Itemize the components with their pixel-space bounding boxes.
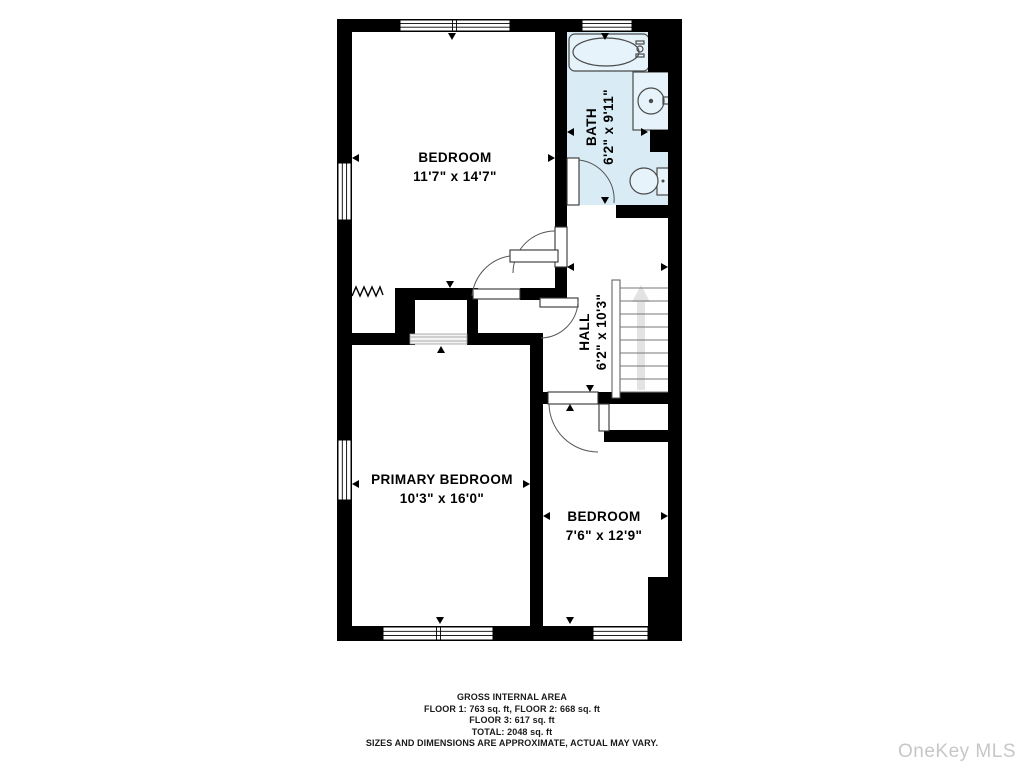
room-dims-primary-bedroom: 10'3" x 16'0" [400,491,484,506]
area-summary-title: GROSS INTERNAL AREA [0,692,1024,704]
window-top-bath [582,20,632,31]
door-hall-bedroom [548,392,598,452]
door-linen-closet [599,404,609,431]
room-label-hall: HALL [577,313,592,351]
door-hall-primary [540,298,578,338]
area-floor-3: FLOOR 3: 617 sq. ft [0,715,1024,727]
staircase [612,280,668,398]
zigzag-symbol [352,287,383,296]
area-floor-1-2: FLOOR 1: 763 sq. ft, FLOOR 2: 668 sq. ft [0,704,1024,716]
area-summary: GROSS INTERNAL AREA FLOOR 1: 763 sq. ft,… [0,692,1024,750]
room-dims-bedroom-bottom: 7'6" x 12'9" [566,528,643,543]
window-left-upper [338,163,351,220]
room-label-bedroom-top: BEDROOM [418,150,491,165]
room-label-bedroom-bottom: BEDROOM [567,509,640,524]
window-bottom-primary [383,627,493,640]
toilet-icon [630,168,670,195]
area-total: TOTAL: 2048 sq. ft [0,727,1024,739]
sink-vanity-icon [633,72,670,130]
room-label-primary-bedroom: PRIMARY BEDROOM [371,472,513,487]
closet-opening [410,334,467,344]
floor-plan: BEDROOM 11'7" x 14'7" BATH 6'2" x 9'11" … [0,0,1024,768]
bathtub-icon [569,34,649,71]
room-dims-hall: 6'2" x 10'3" [594,294,609,371]
window-bottom-bedroom [593,627,648,640]
room-label-bath: BATH [584,108,599,146]
room-dims-bath: 6'2" x 9'11" [601,89,616,165]
window-top-bedroom [400,20,510,31]
watermark-onekey-mls: OneKey MLS [898,741,1016,763]
window-left-lower [338,440,351,500]
page: { "plan": { "rooms": [ {"name": "BEDROOM… [0,0,1024,768]
room-dims-bedroom-top: 11'7" x 14'7" [413,169,497,184]
area-disclaimer: SIZES AND DIMENSIONS ARE APPROXIMATE, AC… [0,738,1024,750]
